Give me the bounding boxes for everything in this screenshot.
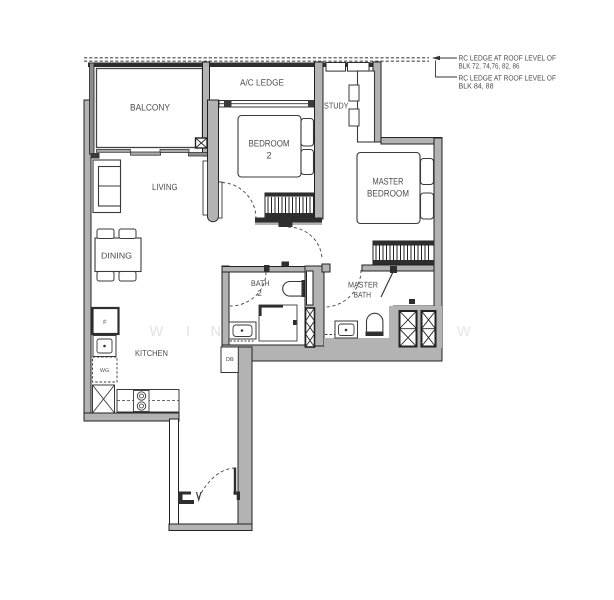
svg-text:BATH: BATH xyxy=(354,291,372,300)
svg-text:DINING: DINING xyxy=(101,251,132,261)
svg-text:2: 2 xyxy=(257,289,262,298)
svg-text:BEDROOM: BEDROOM xyxy=(367,188,409,199)
svg-text:MASTER: MASTER xyxy=(348,281,378,290)
svg-text:N: N xyxy=(211,324,221,340)
svg-text:DB: DB xyxy=(226,357,234,363)
svg-text:I: I xyxy=(186,324,190,340)
svg-text:W: W xyxy=(457,324,471,340)
svg-text:LIVING: LIVING xyxy=(152,182,178,192)
svg-text:A/C LEDGE: A/C LEDGE xyxy=(240,78,284,88)
svg-text:WG: WG xyxy=(100,368,109,374)
svg-text:BATH: BATH xyxy=(251,279,270,288)
svg-text:BALCONY: BALCONY xyxy=(130,102,171,113)
svg-text:W: W xyxy=(150,324,164,340)
svg-text:MASTER: MASTER xyxy=(373,176,404,187)
svg-text:KITCHEN: KITCHEN xyxy=(135,348,168,358)
svg-text:2: 2 xyxy=(266,150,271,161)
svg-text:BLK 72, 74,76, 82, 86: BLK 72, 74,76, 82, 86 xyxy=(459,62,520,71)
svg-text:STUDY: STUDY xyxy=(324,101,349,111)
svg-text:BEDROOM: BEDROOM xyxy=(249,138,290,149)
svg-text:BLK 84, 88: BLK 84, 88 xyxy=(459,82,494,91)
svg-text:F: F xyxy=(103,319,107,326)
